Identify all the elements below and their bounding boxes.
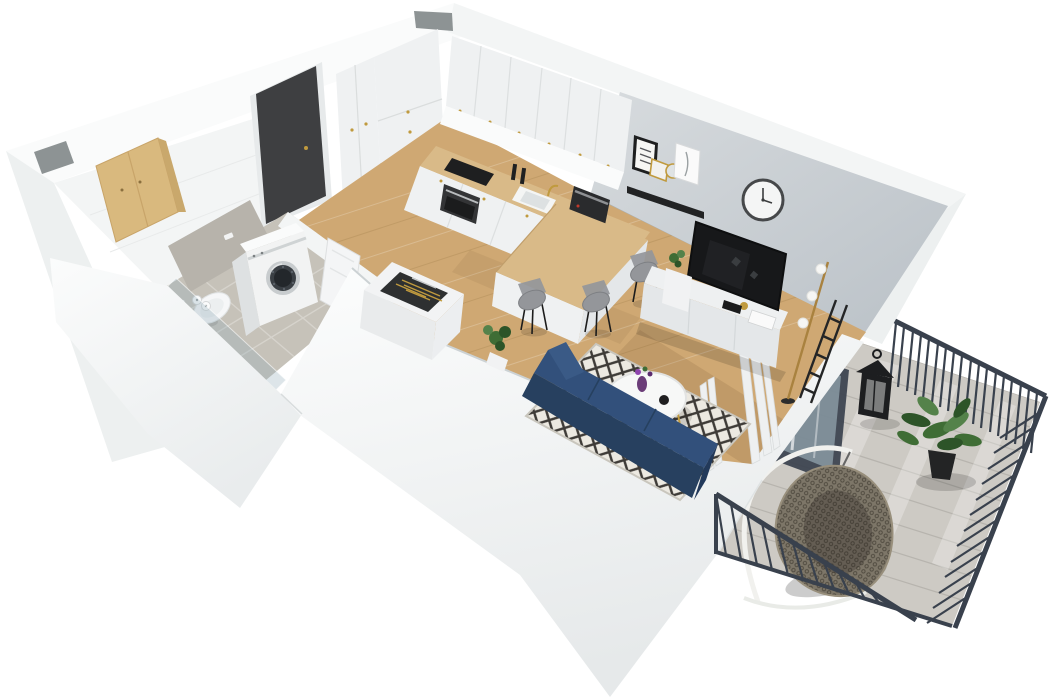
- door-handle: [304, 146, 308, 150]
- wall-clock: [743, 180, 783, 220]
- floorplan-3d-render: 3D isometric floor plan render of a stud…: [0, 0, 1056, 700]
- black-bowl: [659, 395, 669, 405]
- feather-frame: [674, 143, 700, 185]
- floorplan-stage: 3D isometric floor plan render of a stud…: [0, 0, 1056, 700]
- vent-shaft-top: [414, 11, 453, 31]
- entrance-door: [256, 66, 326, 224]
